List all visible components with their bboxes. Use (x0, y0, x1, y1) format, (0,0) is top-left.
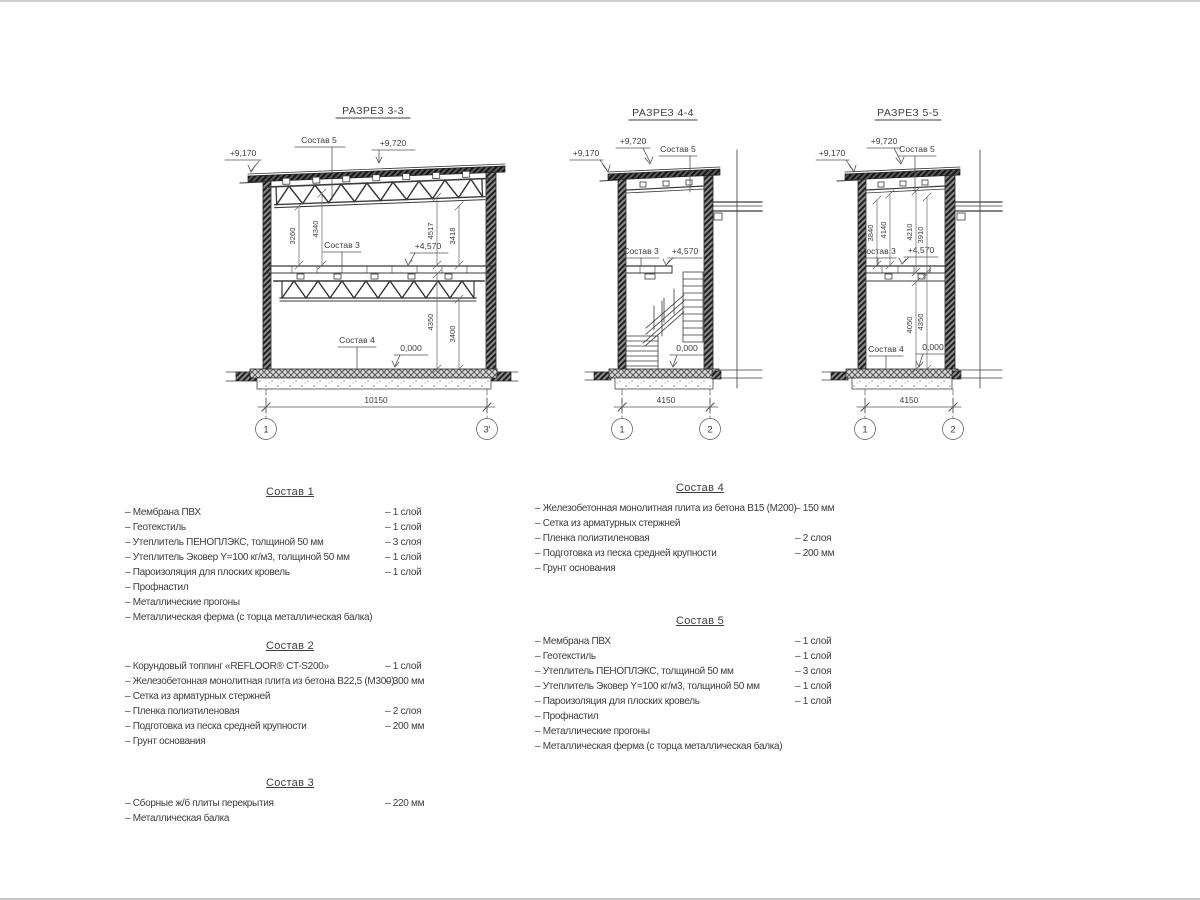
dim-label: 4150 (900, 395, 919, 405)
composition-item: – Утеплитель ПЕНОПЛЭКС, толщиной 50 мм– … (535, 666, 865, 681)
composition-title: Состав 3 (125, 777, 455, 789)
elevation-label: 0,000 (922, 342, 944, 352)
dim-label: 4350 (916, 314, 925, 331)
composition-block-1: Состав 1 – Мембрана ПВХ– 1 слой – Геотек… (125, 486, 455, 627)
section-title: РАЗРЕЗ 4-4 (632, 107, 694, 119)
walls (263, 172, 496, 371)
elevation-label: +4,570 (415, 241, 442, 251)
axis-row: 10150 1 3' (256, 389, 498, 440)
composition-item: – Мембрана ПВХ– 1 слой (535, 636, 865, 651)
elevation-label: +9,170 (573, 148, 600, 158)
ground-slab (226, 369, 518, 389)
composition-item: – Металлическая ферма (с торца металличе… (125, 612, 455, 627)
composition-item: – Металлические прогоны (535, 726, 865, 741)
composition-title: Состав 2 (125, 640, 455, 652)
composition-block-3: Состав 3 – Сборные ж/б плиты перекрытия–… (125, 777, 455, 828)
axis-bubble: 1 (263, 425, 268, 436)
composition-item: – Корундовый топпинг «REFLOOR® CT-S200»–… (125, 661, 455, 676)
elevation-label: 0,000 (400, 343, 422, 353)
composition-item: – Подготовка из песка средней крупности–… (125, 721, 455, 736)
mid-floor (266, 266, 492, 301)
composition-block-4: Состав 4 – Железобетонная монолитная пли… (535, 482, 865, 578)
composition-item: – Подготовка из песка средней крупности–… (535, 548, 865, 563)
composition-ref: Состав 5 (660, 144, 696, 154)
dim-label: 4140 (879, 222, 888, 239)
elevation-label: +9,720 (871, 136, 898, 146)
axis-bubble: 1 (862, 425, 867, 436)
dim-label: 4340 (311, 221, 320, 238)
composition-item: – Мембрана ПВХ– 1 слой (125, 507, 455, 522)
section-5-5: РАЗРЕЗ 5-5 (816, 107, 1002, 440)
composition-item: – Геотекстиль– 1 слой (535, 651, 865, 666)
composition-title: Состав 4 (535, 482, 865, 494)
composition-ref: Состав 3 (860, 246, 896, 256)
elevation-label: +9,720 (620, 136, 647, 146)
composition-item: – Утеплитель ПЕНОПЛЭКС, толщиной 50 мм– … (125, 537, 455, 552)
composition-item: – Сетка из арматурных стержней (125, 691, 455, 706)
composition-item: – Пленка полиэтиленовая– 2 слоя (125, 706, 455, 721)
dim-label: 3400 (448, 326, 457, 343)
composition-ref: Состав 4 (339, 335, 375, 345)
composition-item: – Пароизоляция для плоских кровель– 1 сл… (125, 567, 455, 582)
composition-ref: Состав 5 (899, 144, 935, 154)
composition-item: – Сетка из арматурных стержней (535, 518, 865, 533)
axis-bubble: 1 (619, 425, 624, 436)
composition-item: – Пароизоляция для плоских кровель– 1 сл… (535, 696, 865, 711)
section-4-4: РАЗРЕЗ 4-4 (570, 107, 762, 440)
dim-label: 4350 (426, 314, 435, 331)
composition-item: – Утеплитель Эковер Y=100 кг/м3, толщино… (125, 552, 455, 567)
section-title: РАЗРЕЗ 3-3 (342, 105, 404, 117)
ground-slab (585, 369, 719, 389)
dim-label: 3418 (448, 228, 457, 245)
elevation-label: 0,000 (676, 343, 698, 353)
axis-row: 4150 1 2 (612, 389, 721, 440)
composition-ref: Состав 3 (623, 246, 659, 256)
composition-item: – Грунт основания (535, 563, 865, 578)
dim-label: 3260 (288, 228, 297, 245)
composition-item: – Пленка полиэтиленовая– 2 слоя (535, 533, 865, 548)
dim-label: 4150 (657, 395, 676, 405)
ground-slab (822, 369, 958, 389)
sections-canvas: РАЗРЕЗ 3-3 (0, 0, 1200, 470)
composition-item: – Утеплитель Эковер Y=100 кг/м3, толщино… (535, 681, 865, 696)
axis-bubble: 2 (707, 425, 712, 436)
mid-floor (626, 266, 672, 279)
composition-item: – Железобетонная монолитная плита из бет… (125, 676, 455, 691)
composition-ref: Состав 5 (301, 135, 337, 145)
dim-label: 3840 (866, 225, 875, 242)
composition-block-5: Состав 5 – Мембрана ПВХ– 1 слой – Геотек… (535, 615, 865, 756)
dim-label: 3910 (916, 227, 925, 244)
composition-title: Состав 5 (535, 615, 865, 627)
composition-item: – Металлическая балка (125, 813, 455, 828)
composition-item: – Грунт основания (125, 736, 455, 751)
composition-item: – Геотекстиль– 1 слой (125, 522, 455, 537)
composition-item: – Металлические прогоны (125, 597, 455, 612)
composition-item: – Профнастил (535, 711, 865, 726)
composition-block-2: Состав 2 – Корундовый топпинг «REFLOOR® … (125, 640, 455, 751)
adjacent-structure (712, 150, 762, 388)
elevation-label: +9,720 (380, 138, 407, 148)
dim-label: 10150 (364, 395, 388, 405)
composition-item: – Профнастил (125, 582, 455, 597)
composition-item: – Металлическая ферма (с торца металличе… (535, 741, 865, 756)
roof (837, 167, 960, 193)
composition-item: – Сборные ж/б плиты перекрытия– 220 мм (125, 798, 455, 813)
axis-bubble: 2 (950, 425, 955, 436)
composition-ref: Состав 3 (324, 240, 360, 250)
elevation-label: +9,170 (819, 148, 846, 158)
composition-ref: Состав 4 (868, 344, 904, 354)
dim-label: 4210 (905, 224, 914, 241)
elevation-label: +9,170 (230, 148, 257, 158)
elevation-label: +4,570 (908, 245, 935, 255)
mid-floor (866, 266, 945, 281)
axis-row: 4150 1 2 (855, 389, 964, 440)
axis-bubble: 3' (483, 425, 490, 436)
section-3-3: РАЗРЕЗ 3-3 (225, 105, 518, 440)
dim-label: 4517 (426, 223, 435, 240)
section-title: РАЗРЕЗ 5-5 (877, 107, 939, 119)
composition-title: Состав 1 (125, 486, 455, 498)
dim-label: 4050 (905, 317, 914, 334)
elevation-label: +4,570 (672, 246, 699, 256)
adjacent-structure (952, 150, 1002, 388)
composition-item: – Железобетонная монолитная плита из бет… (535, 503, 865, 518)
